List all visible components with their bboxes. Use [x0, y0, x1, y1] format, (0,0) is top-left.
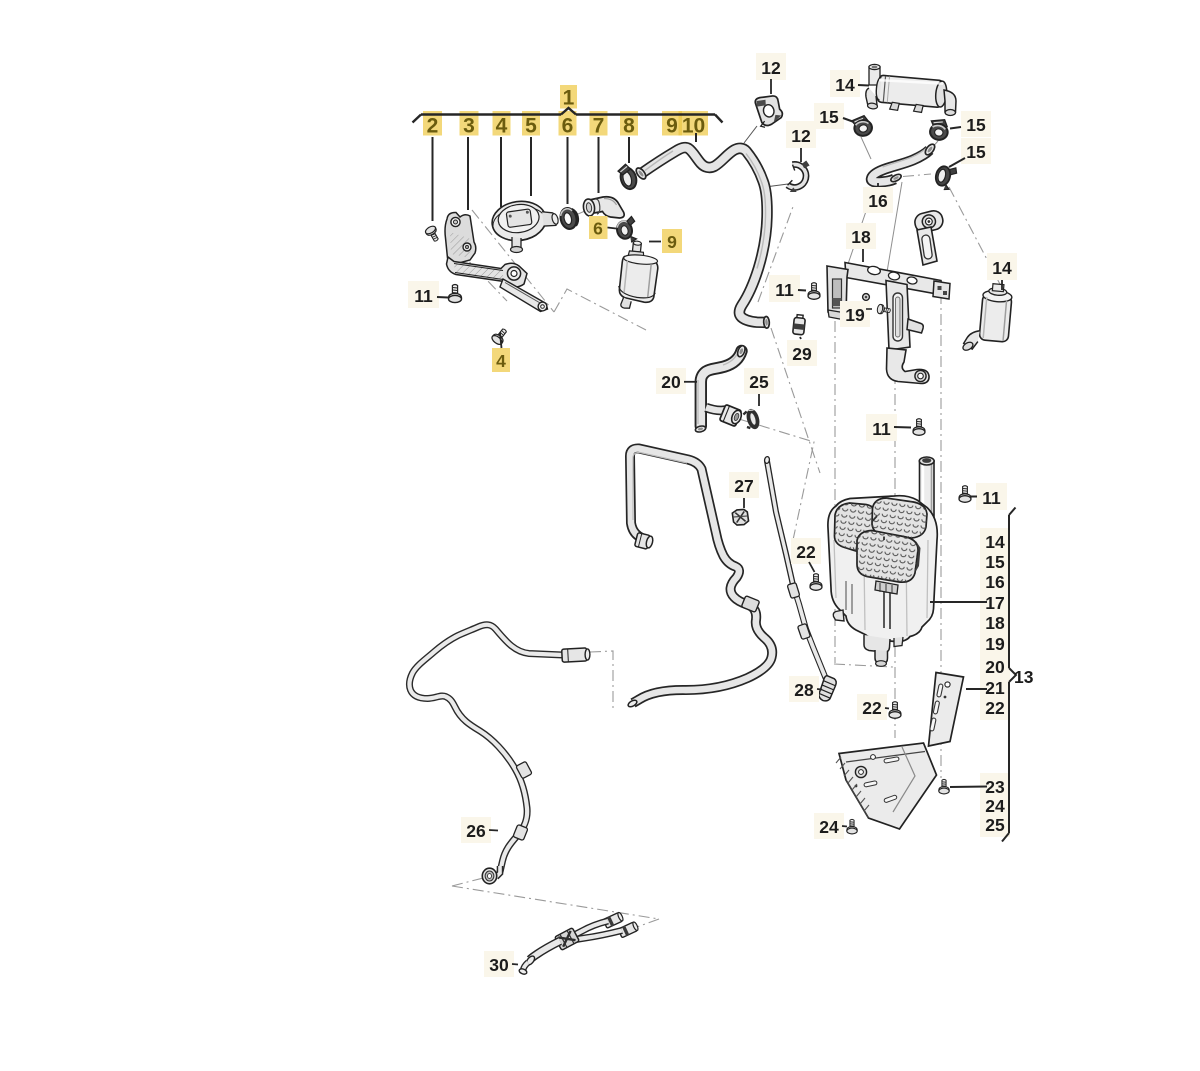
svg-text:15: 15 [985, 552, 1005, 572]
svg-text:5: 5 [525, 115, 537, 138]
svg-text:14: 14 [985, 532, 1005, 552]
svg-text:15: 15 [966, 115, 986, 135]
svg-text:14: 14 [992, 258, 1012, 278]
svg-text:30: 30 [489, 955, 509, 975]
svg-text:1: 1 [563, 87, 575, 110]
svg-text:15: 15 [819, 107, 839, 127]
svg-text:24: 24 [819, 817, 839, 837]
svg-text:10: 10 [682, 115, 705, 138]
svg-text:20: 20 [661, 372, 681, 392]
svg-text:4: 4 [496, 351, 506, 371]
svg-text:24: 24 [985, 796, 1005, 816]
svg-text:25: 25 [985, 815, 1005, 835]
svg-text:18: 18 [985, 613, 1005, 633]
svg-text:6: 6 [562, 115, 574, 138]
svg-text:29: 29 [792, 344, 812, 364]
svg-text:7: 7 [593, 115, 605, 138]
svg-text:20: 20 [985, 657, 1005, 677]
svg-text:15: 15 [966, 142, 986, 162]
svg-text:11: 11 [775, 280, 794, 300]
svg-text:16: 16 [868, 191, 888, 211]
svg-text:2: 2 [427, 115, 439, 138]
svg-text:19: 19 [845, 305, 865, 325]
svg-text:25: 25 [749, 372, 769, 392]
svg-text:6: 6 [593, 219, 603, 239]
svg-text:9: 9 [667, 232, 677, 252]
svg-text:22: 22 [862, 698, 882, 718]
svg-text:28: 28 [794, 680, 814, 700]
svg-text:12: 12 [791, 126, 811, 146]
svg-text:14: 14 [835, 75, 855, 95]
svg-text:8: 8 [623, 115, 635, 138]
svg-text:11: 11 [414, 286, 433, 306]
svg-text:11: 11 [872, 419, 891, 439]
svg-text:22: 22 [796, 542, 816, 562]
svg-text:11: 11 [982, 488, 1001, 508]
svg-text:26: 26 [466, 821, 486, 841]
svg-text:23: 23 [985, 777, 1005, 797]
svg-text:9: 9 [666, 115, 678, 138]
svg-text:4: 4 [496, 115, 508, 138]
svg-text:13: 13 [1014, 667, 1034, 687]
svg-text:18: 18 [851, 227, 871, 247]
svg-text:12: 12 [761, 58, 781, 78]
svg-text:17: 17 [985, 593, 1004, 613]
svg-text:21: 21 [985, 678, 1005, 698]
svg-text:16: 16 [985, 572, 1005, 592]
svg-text:22: 22 [985, 698, 1005, 718]
svg-text:27: 27 [734, 476, 753, 496]
svg-text:19: 19 [985, 634, 1005, 654]
svg-text:3: 3 [463, 115, 475, 138]
